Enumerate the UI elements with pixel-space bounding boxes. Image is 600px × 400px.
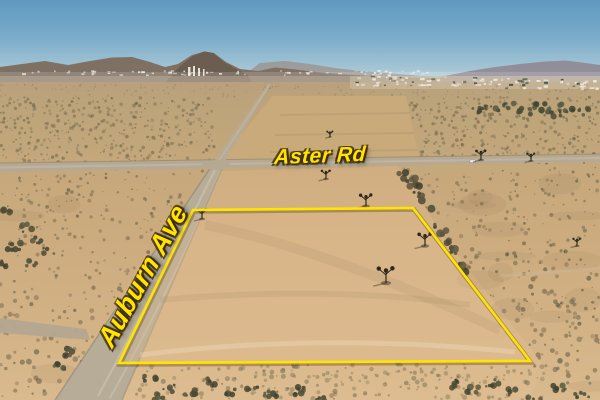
scene-svg <box>0 0 600 400</box>
aster-rd-label: Aster Rd <box>273 143 366 170</box>
aerial-photo: Aster Rd Auburn Ave <box>0 0 600 400</box>
